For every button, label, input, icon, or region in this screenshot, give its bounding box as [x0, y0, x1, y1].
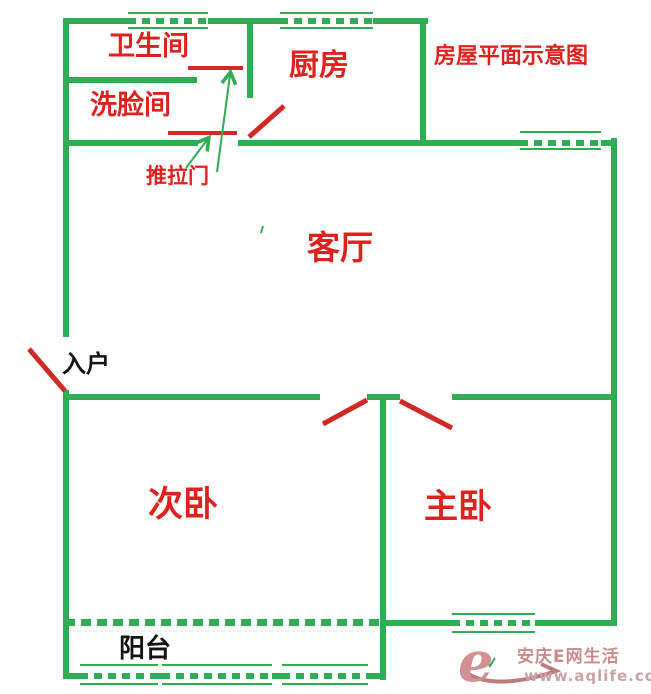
window-symbol — [80, 683, 158, 685]
window-symbol — [282, 683, 368, 685]
window-symbol — [520, 148, 601, 150]
annotation-sliding-door: 推拉门 — [146, 166, 209, 187]
window-symbol — [280, 12, 373, 14]
window-symbol — [80, 673, 158, 679]
room-label-living-room: 客厅 — [307, 231, 373, 264]
wall-living-bedroom-left — [63, 394, 320, 400]
wall-bathroom-washroom-divider — [63, 77, 197, 83]
wall-bedroom-divider — [380, 394, 386, 680]
wall-living-bedroom-right — [452, 394, 617, 400]
balcony-dashed-wall — [65, 619, 381, 626]
window-symbol — [162, 683, 272, 685]
window-symbol — [520, 131, 601, 133]
window-symbol — [280, 18, 373, 24]
arrow-icon-sliding-door-2 — [217, 75, 230, 172]
room-label-master-bedroom: 主卧 — [424, 490, 492, 524]
watermark-logo: e — [458, 634, 494, 690]
room-label-bathroom: 卫生间 — [108, 33, 189, 60]
watermark-site-url: www.aqlife.com — [524, 669, 651, 684]
room-label-washroom: 洗脸间 — [90, 92, 171, 119]
window-symbol — [162, 664, 272, 666]
window-symbol — [128, 27, 208, 29]
door-swing-entrance — [29, 349, 65, 391]
outer-wall-right — [611, 138, 617, 625]
room-label-balcony: 阳台 — [119, 636, 171, 662]
room-label-second-bedroom: 次卧 — [148, 488, 218, 523]
room-label-kitchen: 厨房 — [289, 51, 349, 81]
window-symbol — [282, 673, 368, 679]
watermark-site-name: 安庆E网生活 — [517, 649, 620, 666]
wall-kitchen-right — [420, 18, 426, 146]
wall-washroom-bottom — [63, 140, 198, 146]
window-symbol — [452, 613, 535, 615]
window-symbol — [80, 664, 158, 666]
window-symbol — [128, 18, 208, 24]
door-swing-master-bedroom — [400, 401, 452, 428]
annotation-entrance: 入户 — [62, 352, 110, 376]
outer-wall-top — [63, 18, 428, 24]
floor-plan: 房屋平面示意图 卫生间 洗脸间 厨房 推拉门 客厅 入户 次卧 主卧 阳台 e … — [0, 0, 651, 694]
door-swing-kitchen — [249, 106, 284, 137]
window-symbol — [280, 27, 373, 29]
stray-mark — [261, 226, 263, 233]
outer-wall-left-upper — [63, 18, 69, 337]
window-symbol — [162, 673, 272, 679]
page-title: 房屋平面示意图 — [434, 46, 588, 68]
window-symbol — [520, 140, 601, 146]
wall-bathroom-kitchen-divider — [247, 18, 253, 98]
window-symbol — [128, 12, 208, 14]
door-swing-second-bedroom — [323, 400, 367, 424]
window-symbol — [452, 620, 535, 626]
window-symbol — [282, 664, 368, 666]
outer-wall-left-lower — [63, 390, 69, 679]
